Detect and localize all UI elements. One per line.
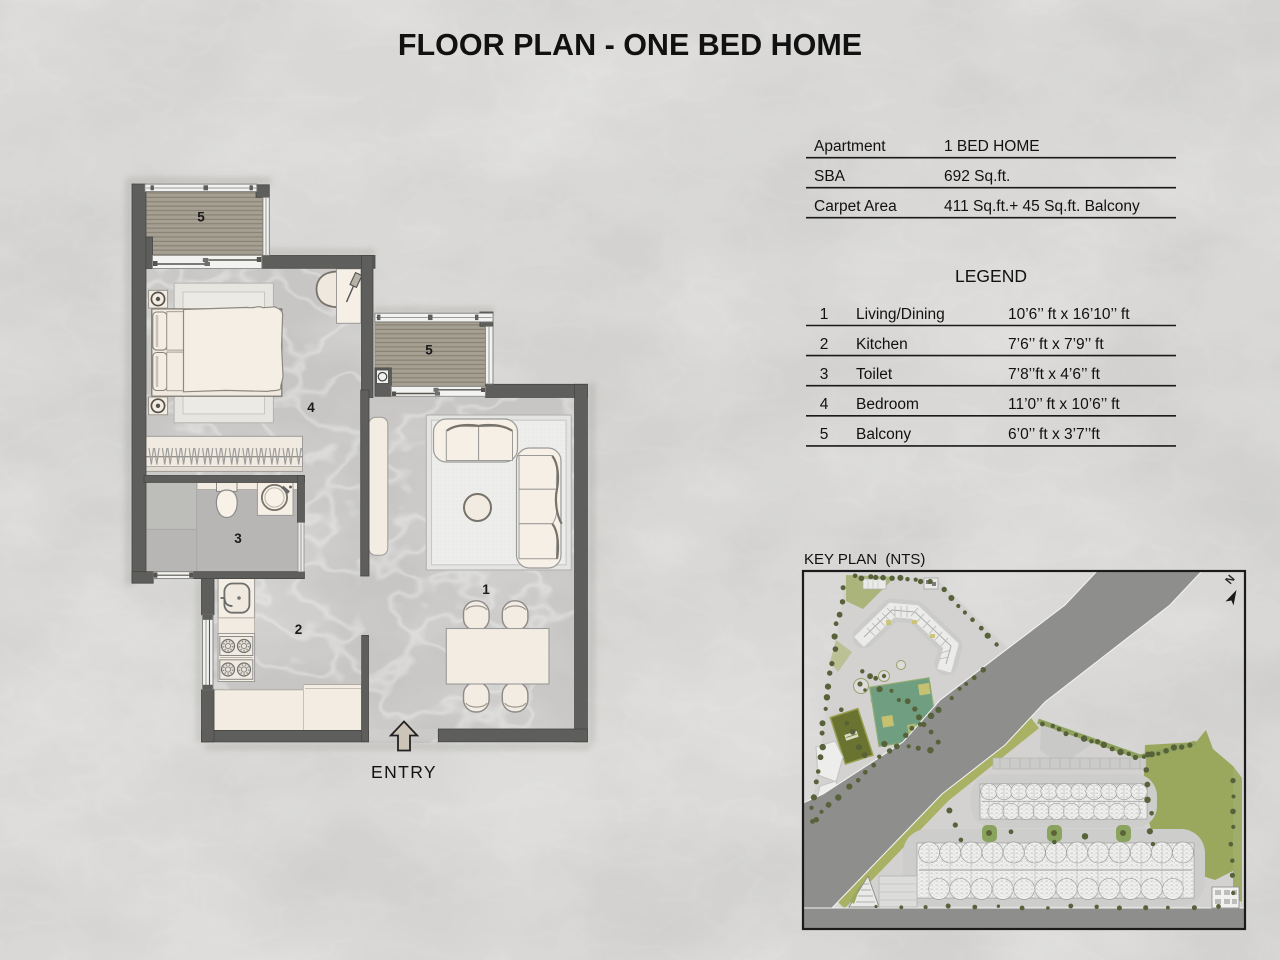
svg-text:692 Sq.ft.: 692 Sq.ft. [944, 168, 1010, 185]
svg-text:Kitchen: Kitchen [856, 336, 908, 353]
svg-text:Bedroom: Bedroom [856, 396, 919, 413]
svg-text:5: 5 [425, 343, 433, 358]
svg-text:3: 3 [234, 531, 242, 546]
svg-text:4: 4 [307, 400, 315, 415]
svg-text:3: 3 [820, 366, 829, 383]
svg-text:Toilet: Toilet [856, 366, 893, 383]
svg-text:FLOOR PLAN - ONE BED HOME: FLOOR PLAN - ONE BED HOME [398, 28, 862, 62]
svg-text:10’6’’ ft x 16’10’’ ft: 10’6’’ ft x 16’10’’ ft [1008, 306, 1130, 323]
svg-text:KEY PLAN (NTS): KEY PLAN (NTS) [804, 551, 925, 568]
svg-text:2: 2 [295, 622, 303, 637]
svg-text:4: 4 [820, 396, 829, 413]
svg-text:Carpet Area: Carpet Area [814, 198, 897, 215]
svg-text:2: 2 [820, 336, 829, 353]
svg-text:7’6’’ ft x 7’9’’ ft: 7’6’’ ft x 7’9’’ ft [1008, 336, 1104, 353]
svg-text:SBA: SBA [814, 168, 846, 185]
svg-text:1: 1 [482, 582, 490, 597]
svg-text:5: 5 [820, 426, 829, 443]
svg-text:411 Sq.ft.+ 45 Sq.ft. Balcony: 411 Sq.ft.+ 45 Sq.ft. Balcony [944, 198, 1140, 215]
svg-text:Apartment: Apartment [814, 138, 886, 155]
svg-text:11’0’’ ft x 10’6’’ ft: 11’0’’ ft x 10’6’’ ft [1008, 396, 1120, 413]
svg-text:1: 1 [820, 306, 829, 323]
svg-text:ENTRY: ENTRY [371, 762, 437, 782]
svg-text:1 BED HOME: 1 BED HOME [944, 138, 1040, 155]
svg-text:7’8’’ft x 4’6’’ ft: 7’8’’ft x 4’6’’ ft [1008, 366, 1101, 383]
svg-text:LEGEND: LEGEND [955, 266, 1027, 286]
svg-text:6’0’’ ft x 3’7’’ft: 6’0’’ ft x 3’7’’ft [1008, 426, 1101, 443]
svg-text:5: 5 [197, 210, 205, 225]
svg-text:Balcony: Balcony [856, 426, 911, 443]
svg-text:Living/Dining: Living/Dining [856, 306, 945, 323]
